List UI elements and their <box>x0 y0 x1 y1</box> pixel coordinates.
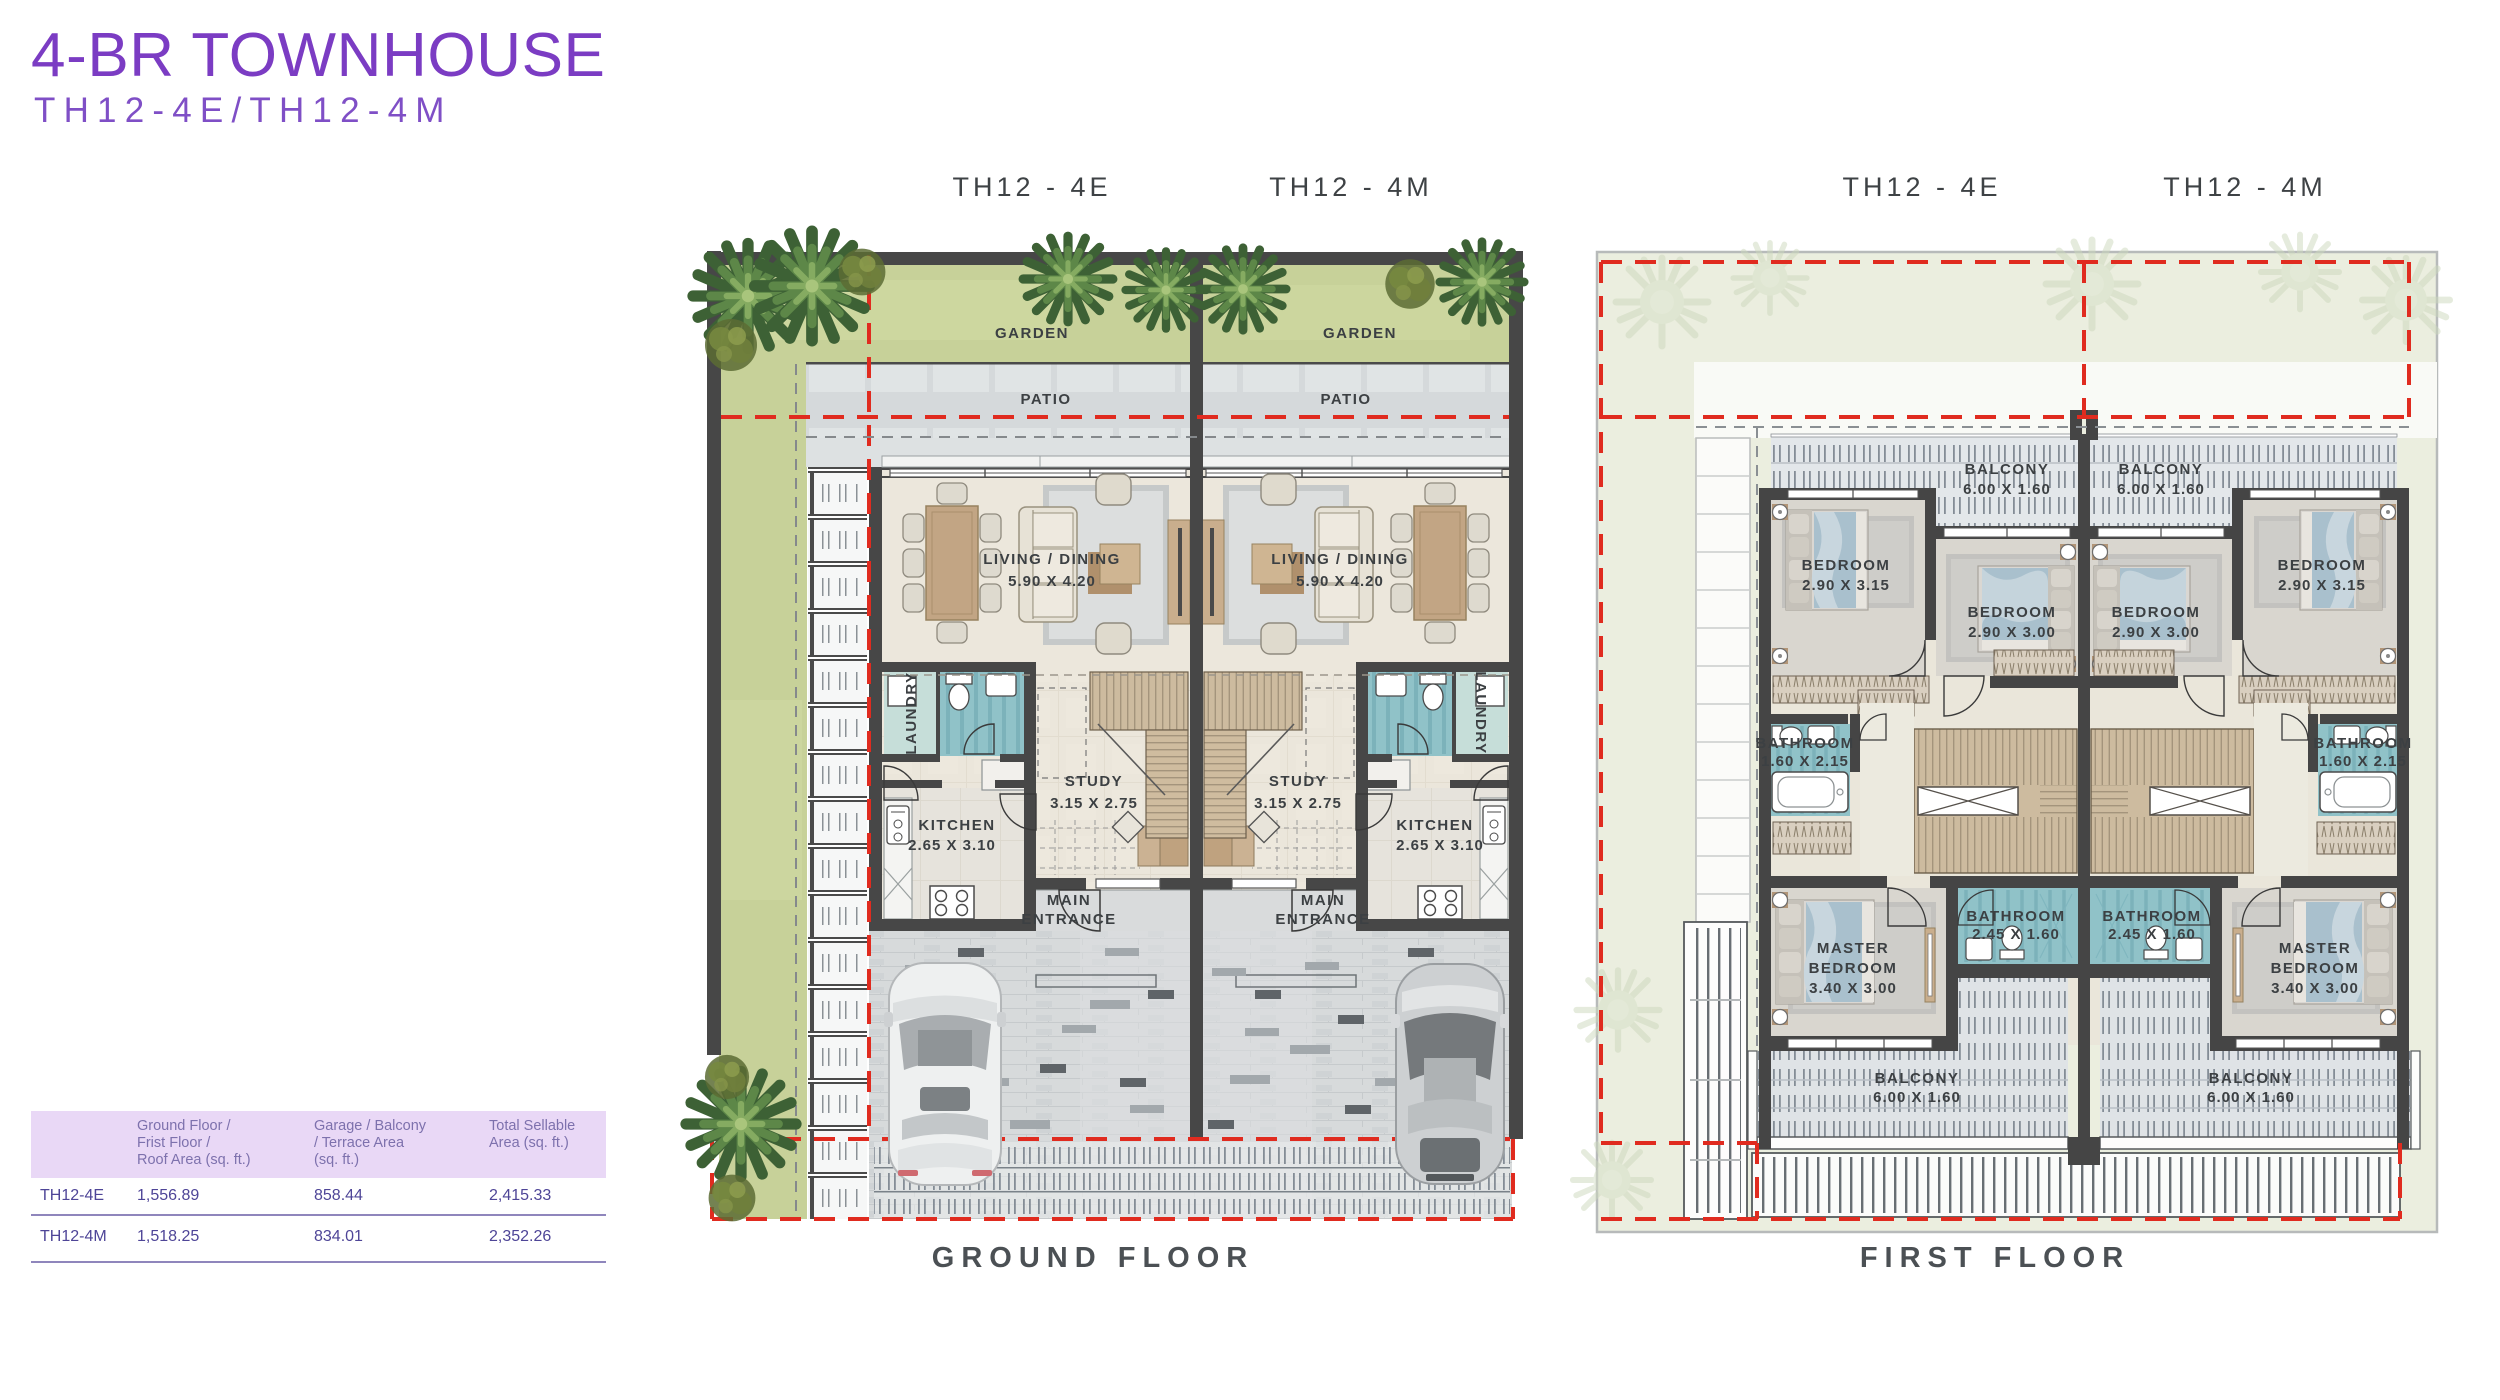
svg-text:GARDEN: GARDEN <box>995 325 1069 342</box>
svg-text:3.40 X 3.00: 3.40 X 3.00 <box>2271 980 2359 997</box>
svg-text:BALCONY: BALCONY <box>1965 461 2050 478</box>
svg-text:3.15 X 2.75: 3.15 X 2.75 <box>1254 795 1342 812</box>
svg-text:1.60 X 2.15: 1.60 X 2.15 <box>1761 753 1849 770</box>
svg-text:LIVING / DINING: LIVING / DINING <box>1271 551 1409 568</box>
svg-text:834.01: 834.01 <box>314 1228 363 1245</box>
svg-text:MAIN: MAIN <box>1047 892 1091 909</box>
svg-text:BEDROOM: BEDROOM <box>1802 557 1891 574</box>
svg-text:Area (sq. ft.): Area (sq. ft.) <box>489 1135 569 1151</box>
svg-text:TH12 - 4E: TH12 - 4E <box>952 172 1111 202</box>
svg-text:2.65 X 3.10: 2.65 X 3.10 <box>908 837 996 854</box>
svg-text:PATIO: PATIO <box>1320 391 1371 408</box>
svg-text:BEDROOM: BEDROOM <box>1968 604 2057 621</box>
svg-text:PATIO: PATIO <box>1020 391 1071 408</box>
svg-text:BALCONY: BALCONY <box>2119 461 2204 478</box>
svg-text:TH12 - 4M: TH12 - 4M <box>2163 172 2327 202</box>
svg-text:KITCHEN: KITCHEN <box>1396 817 1473 834</box>
svg-text:5.90 X 4.20: 5.90 X 4.20 <box>1008 573 1096 590</box>
svg-text:2.45 X 1.60: 2.45 X 1.60 <box>2108 926 2196 943</box>
svg-text:Roof Area (sq. ft.): Roof Area (sq. ft.) <box>137 1152 251 1168</box>
svg-text:BATHROOM: BATHROOM <box>1755 735 1854 752</box>
svg-text:1,518.25: 1,518.25 <box>137 1228 199 1245</box>
svg-text:2.65 X 3.10: 2.65 X 3.10 <box>1396 837 1484 854</box>
svg-text:LAUNDRY: LAUNDRY <box>903 671 920 754</box>
svg-text:6.00 X 1.60: 6.00 X 1.60 <box>2117 481 2205 498</box>
svg-text:MASTER: MASTER <box>1817 940 1889 957</box>
svg-text:BEDROOM: BEDROOM <box>2278 557 2367 574</box>
svg-text:2.90 X 3.15: 2.90 X 3.15 <box>1802 577 1890 594</box>
svg-text:/ Terrace Area: / Terrace Area <box>314 1135 405 1151</box>
svg-text:LIVING / DINING: LIVING / DINING <box>983 551 1121 568</box>
svg-text:FIRST FLOOR: FIRST FLOOR <box>1860 1242 2130 1274</box>
svg-text:MAIN: MAIN <box>1301 892 1345 909</box>
svg-text:3.15 X 2.75: 3.15 X 2.75 <box>1050 795 1138 812</box>
svg-text:2,352.26: 2,352.26 <box>489 1228 551 1245</box>
svg-text:KITCHEN: KITCHEN <box>918 817 995 834</box>
svg-text:LAUNDRY: LAUNDRY <box>1472 671 1489 754</box>
svg-text:BALCONY: BALCONY <box>1875 1070 1960 1087</box>
svg-text:2,415.33: 2,415.33 <box>489 1187 551 1204</box>
svg-text:BEDROOM: BEDROOM <box>2112 604 2201 621</box>
svg-text:ENTRANCE: ENTRANCE <box>1275 911 1370 928</box>
svg-text:Garage / Balcony: Garage / Balcony <box>314 1118 427 1134</box>
svg-text:3.40 X 3.00: 3.40 X 3.00 <box>1809 980 1897 997</box>
svg-text:GROUND FLOOR: GROUND FLOOR <box>932 1242 1254 1274</box>
svg-text:STUDY: STUDY <box>1269 773 1327 790</box>
svg-text:Ground Floor /: Ground Floor / <box>137 1118 231 1134</box>
svg-text:STUDY: STUDY <box>1065 773 1123 790</box>
svg-text:TH12 - 4M: TH12 - 4M <box>1269 172 1433 202</box>
svg-text:2.45 X 1.60: 2.45 X 1.60 <box>1972 926 2060 943</box>
svg-text:6.00 X 1.60: 6.00 X 1.60 <box>1873 1089 1961 1106</box>
svg-text:2.90 X 3.00: 2.90 X 3.00 <box>1968 624 2056 641</box>
svg-text:2.90 X 3.15: 2.90 X 3.15 <box>2278 577 2366 594</box>
svg-text:BATHROOM: BATHROOM <box>1966 908 2065 925</box>
svg-text:TH12-4E: TH12-4E <box>40 1187 104 1204</box>
svg-text:858.44: 858.44 <box>314 1187 363 1204</box>
svg-text:BATHROOM: BATHROOM <box>2313 735 2412 752</box>
svg-text:6.00 X 1.60: 6.00 X 1.60 <box>2207 1089 2295 1106</box>
svg-text:BATHROOM: BATHROOM <box>2102 908 2201 925</box>
svg-text:1,556.89: 1,556.89 <box>137 1187 199 1204</box>
svg-text:TH12 - 4E: TH12 - 4E <box>1842 172 2001 202</box>
svg-text:MASTER: MASTER <box>2279 940 2351 957</box>
svg-text:ENTRANCE: ENTRANCE <box>1021 911 1116 928</box>
svg-text:6.00 X 1.60: 6.00 X 1.60 <box>1963 481 2051 498</box>
svg-text:TH12-4M: TH12-4M <box>40 1228 107 1245</box>
svg-text:GARDEN: GARDEN <box>1323 325 1397 342</box>
svg-text:Total Sellable: Total Sellable <box>489 1118 575 1134</box>
svg-text:BEDROOM: BEDROOM <box>2271 960 2360 977</box>
svg-text:BEDROOM: BEDROOM <box>1809 960 1898 977</box>
svg-text:TH12-4E/TH12-4M: TH12-4E/TH12-4M <box>34 91 453 130</box>
svg-text:BALCONY: BALCONY <box>2209 1070 2294 1087</box>
svg-text:2.90 X 3.00: 2.90 X 3.00 <box>2112 624 2200 641</box>
svg-text:4-BR TOWNHOUSE: 4-BR TOWNHOUSE <box>31 21 606 90</box>
svg-text:(sq. ft.): (sq. ft.) <box>314 1152 359 1168</box>
svg-text:1.60 X 2.15: 1.60 X 2.15 <box>2319 753 2407 770</box>
svg-text:Frist Floor /: Frist Floor / <box>137 1135 211 1151</box>
svg-text:5.90 X 4.20: 5.90 X 4.20 <box>1296 573 1384 590</box>
